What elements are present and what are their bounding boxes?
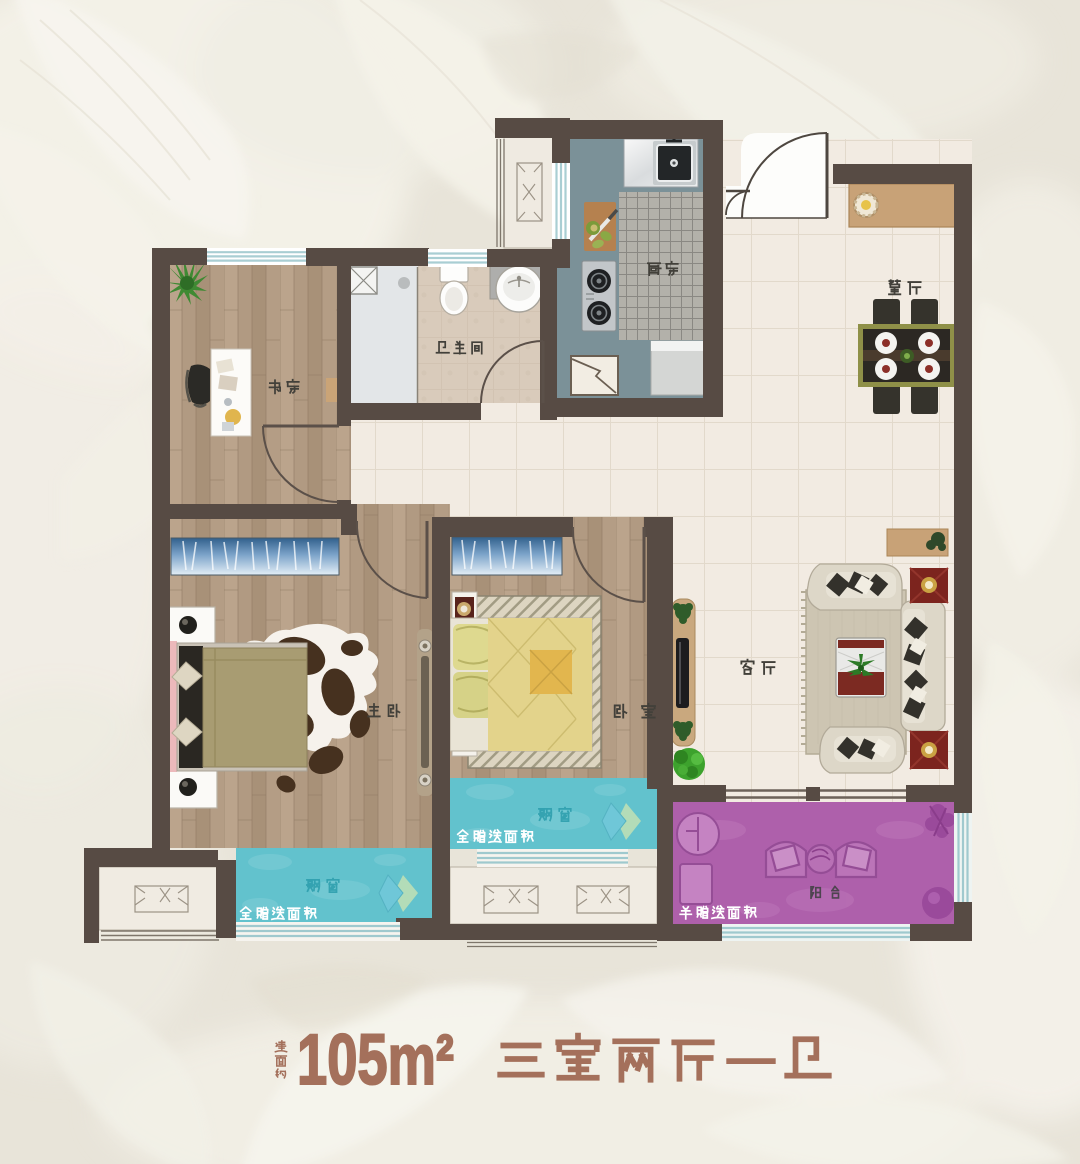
svg-text:105m²: 105m² [297,1021,454,1100]
